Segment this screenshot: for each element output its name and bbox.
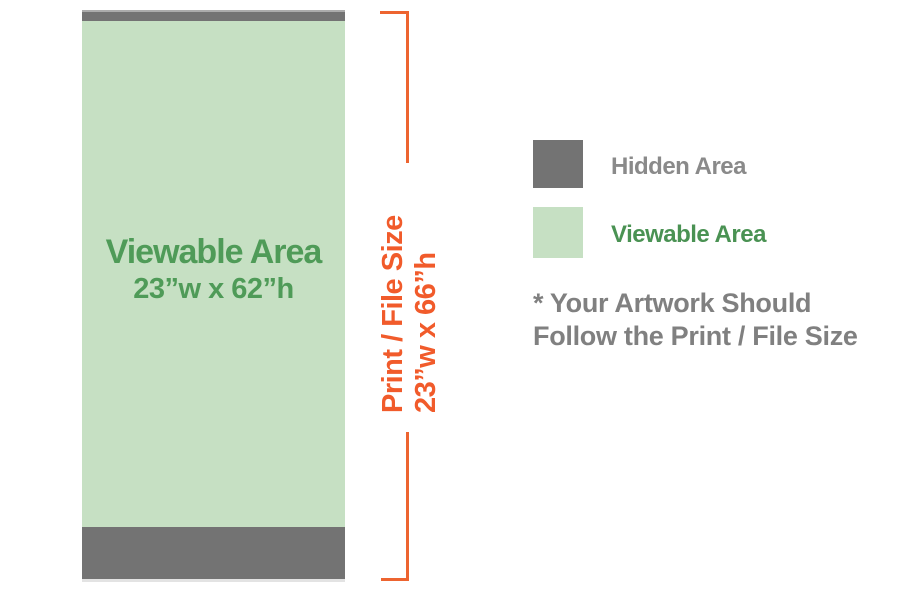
legend-hidden-area-label: Hidden Area (611, 153, 746, 181)
viewable-area-size: 23”w x 62”h (82, 272, 345, 306)
print-file-size-value: 23”w x 66”h (410, 173, 443, 413)
bracket-top-segment (406, 11, 409, 163)
bracket-bottom-tick (381, 578, 409, 581)
bracket-top-tick (380, 11, 409, 14)
legend-viewable-area-swatch (533, 207, 583, 258)
viewable-area-caption: Viewable Area 23”w x 62”h (82, 232, 345, 306)
print-file-size-label: Print / File Size 23”w x 66”h (377, 173, 443, 413)
artwork-note-line1: * Your Artwork Should (533, 287, 893, 320)
banner-viewable-area: Viewable Area 23”w x 62”h (82, 21, 345, 527)
banner-top-hidden-strip (82, 10, 345, 21)
legend-viewable-area-label: Viewable Area (611, 221, 766, 249)
artwork-note-line2: Follow the Print / File Size (533, 320, 893, 353)
viewable-area-title: Viewable Area (82, 232, 345, 272)
bracket-bottom-segment (406, 432, 409, 579)
legend-hidden-area-swatch (533, 140, 583, 188)
print-file-size-title: Print / File Size (377, 173, 410, 413)
artwork-note: * Your Artwork Should Follow the Print /… (533, 287, 893, 353)
banner-bottom-hidden-strip (82, 527, 345, 582)
